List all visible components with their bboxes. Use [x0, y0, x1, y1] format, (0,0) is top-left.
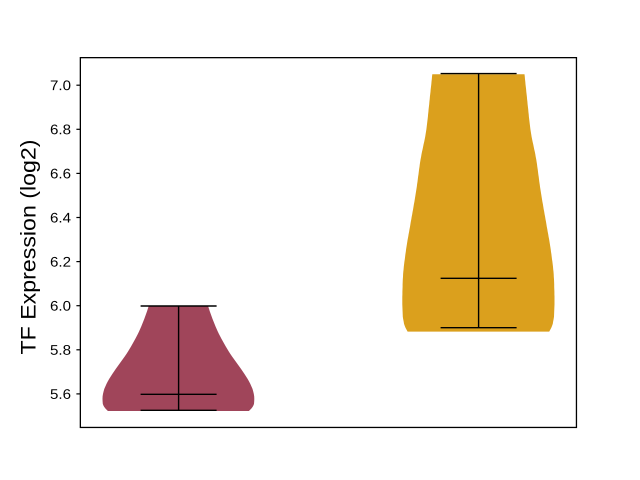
svg-text:6.4: 6.4 — [50, 209, 71, 225]
svg-text:6.8: 6.8 — [50, 121, 71, 137]
svg-text:TF Expression (log2): TF Expression (log2) — [17, 140, 41, 355]
svg-text:7.0: 7.0 — [50, 77, 71, 93]
svg-text:6.0: 6.0 — [50, 298, 71, 314]
svg-text:5.6: 5.6 — [50, 386, 71, 402]
svg-text:5.8: 5.8 — [50, 342, 71, 358]
svg-text:6.6: 6.6 — [50, 165, 71, 181]
svg-text:6.2: 6.2 — [50, 254, 71, 270]
